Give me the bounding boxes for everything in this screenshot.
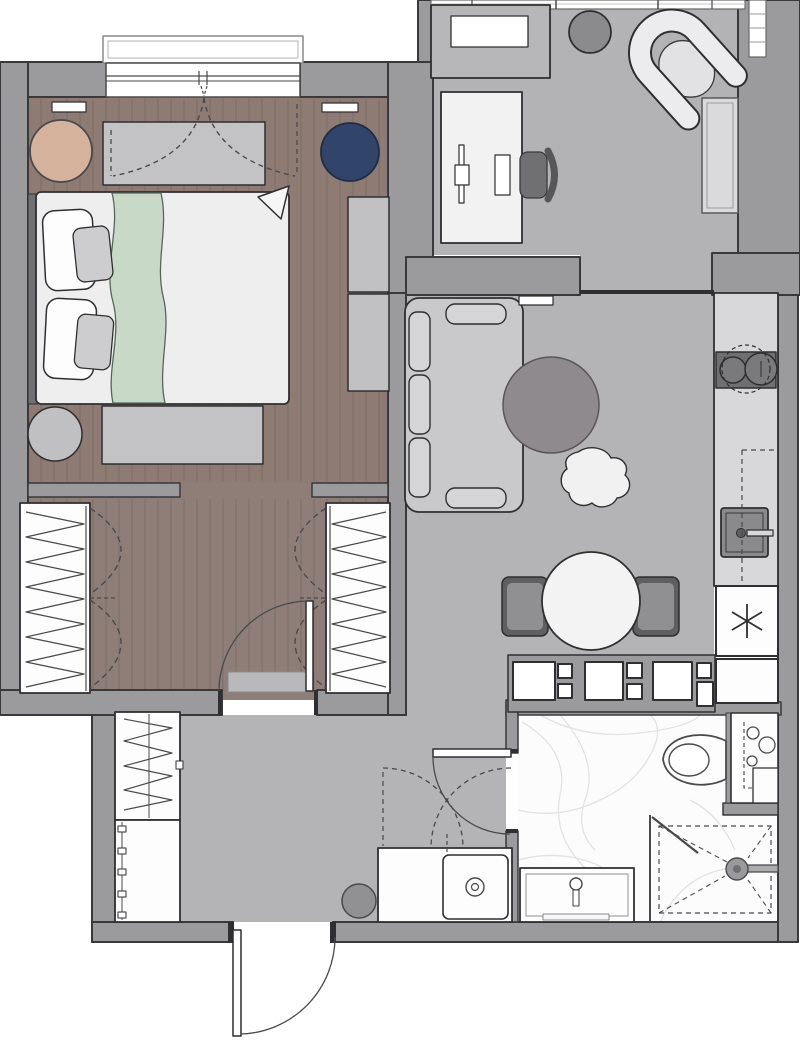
sofa-armrest (446, 488, 506, 508)
desk-keyboard (495, 155, 510, 195)
door-jamb (314, 690, 318, 715)
bathroom-door-leaf (433, 749, 511, 757)
closet-gap-floor (180, 483, 312, 497)
desk-monitor-stand (455, 165, 469, 185)
dining-table (542, 552, 640, 650)
sofa-back-cushion (409, 375, 430, 434)
kitchen-sink-drain (737, 529, 746, 538)
vanity-towel-bar (543, 914, 609, 920)
kitchen-tall-unit (716, 659, 778, 703)
sofa-back-cushion (409, 438, 430, 497)
door-jamb (218, 690, 222, 715)
storage-cell (697, 663, 711, 678)
plumbing-circle (747, 756, 757, 766)
storage-cell (585, 662, 623, 700)
entry-door-leaf (233, 930, 241, 1036)
toilet-bowl (669, 744, 709, 776)
doormat (228, 672, 307, 692)
storage-cell (697, 682, 713, 706)
bedroom-cabinet (348, 294, 389, 391)
wall-light (322, 103, 358, 112)
wall-light (52, 102, 86, 112)
hall-pouf (342, 884, 376, 918)
storage-cell (627, 663, 642, 678)
sofa-back-cushion (409, 312, 430, 371)
wall-office-right (738, 0, 800, 255)
dining-chair-seat (638, 583, 674, 630)
hall-cabinet-peg (118, 848, 126, 854)
vanity-faucet (570, 878, 582, 890)
wall-shower-north (723, 803, 778, 815)
floor-plan-page (0, 0, 800, 1041)
sofa-armrest (446, 304, 506, 324)
bed-foot-bench (102, 406, 263, 464)
bedroom-cabinet (348, 197, 389, 292)
plumbing-circle (747, 727, 759, 739)
bed-cushion (74, 314, 115, 371)
office-sideboard-inner (451, 16, 528, 47)
washing-machine (443, 855, 508, 919)
shower-arm (747, 865, 778, 872)
wall-step (712, 253, 800, 295)
pouf-tan (30, 120, 92, 182)
hall-cabinet-peg (118, 891, 126, 897)
office-side-table (569, 11, 611, 53)
wall-stub-left (28, 483, 180, 497)
living-round-rug (503, 357, 599, 453)
kitchen-faucet (747, 530, 773, 536)
bed-cushion (72, 225, 113, 282)
storage-cell (558, 684, 572, 698)
dining-chair-seat (507, 583, 543, 630)
wall-right-lower (778, 255, 798, 942)
door-jamb (506, 829, 518, 833)
shower-head-center (733, 865, 741, 873)
bath-corner-shelf (753, 768, 778, 803)
office-chair-seat (520, 152, 547, 198)
vanity-faucet-stem (573, 890, 579, 906)
living-floor-lower (406, 658, 508, 715)
pouf-navy (321, 123, 379, 181)
hall-cabinet-peg (118, 912, 126, 918)
wall-hall-left (92, 715, 117, 942)
bed-blanket (110, 193, 166, 403)
hall-cabinet-peg (118, 869, 126, 875)
plumbing-circle (759, 737, 775, 753)
storage-cell (627, 684, 642, 699)
bedroom-window-outer-frame (103, 36, 303, 63)
wall-living-north (406, 257, 580, 295)
storage-cell (653, 662, 692, 700)
wall-stub-right (312, 483, 388, 497)
bedroom-dresser (103, 122, 265, 185)
wall-bottom-right (333, 922, 798, 942)
storage-cell (513, 662, 555, 700)
wall-bottom-left (92, 922, 233, 942)
office-living-threshold (580, 290, 714, 294)
storage-cell (558, 664, 572, 678)
floor-plan (0, 0, 800, 1041)
bedroom-door-leaf (306, 601, 313, 691)
living-wall-vent (519, 296, 553, 305)
passage-floor (580, 253, 714, 293)
bedroom-stool (28, 407, 82, 461)
hall-cabinet-peg (118, 826, 126, 832)
hall-wardrobe-notch (176, 761, 183, 769)
